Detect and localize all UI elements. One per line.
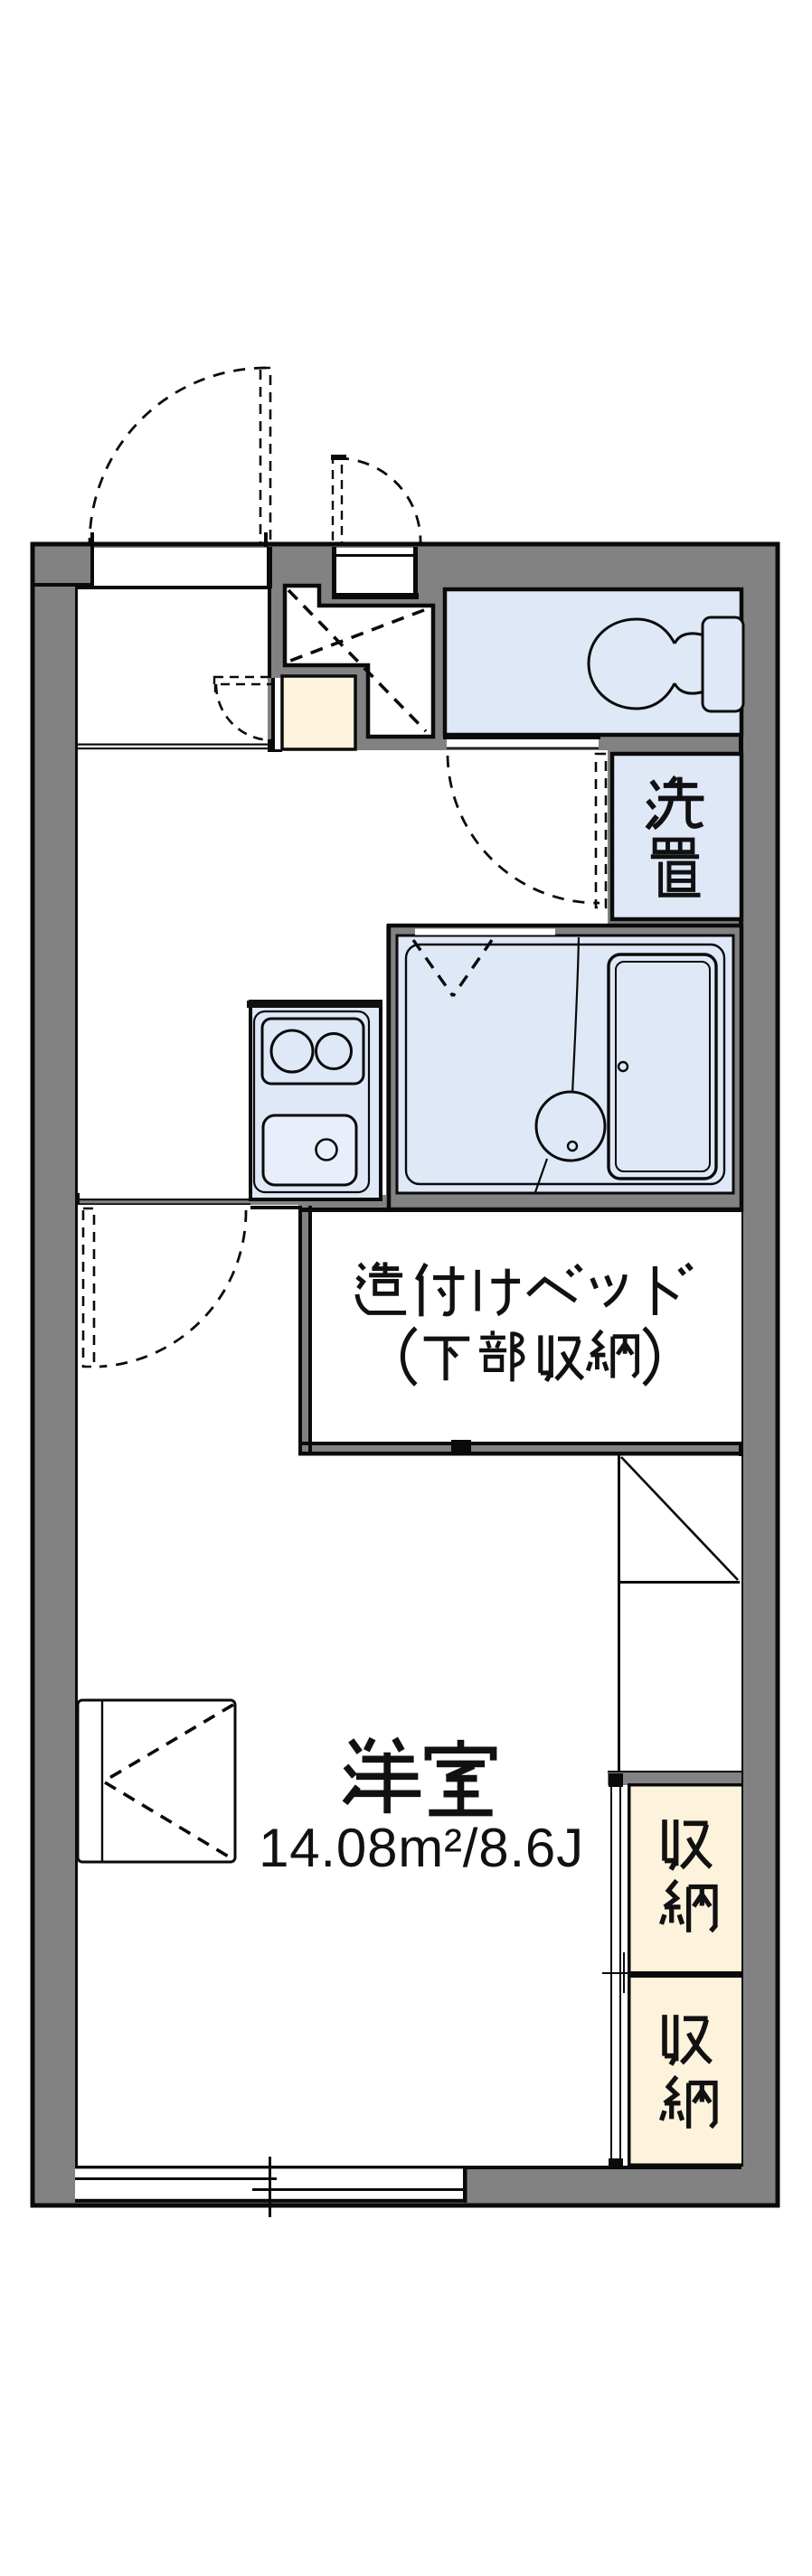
- svg-text:14.08m²/8.6J: 14.08m²/8.6J: [259, 1818, 584, 1878]
